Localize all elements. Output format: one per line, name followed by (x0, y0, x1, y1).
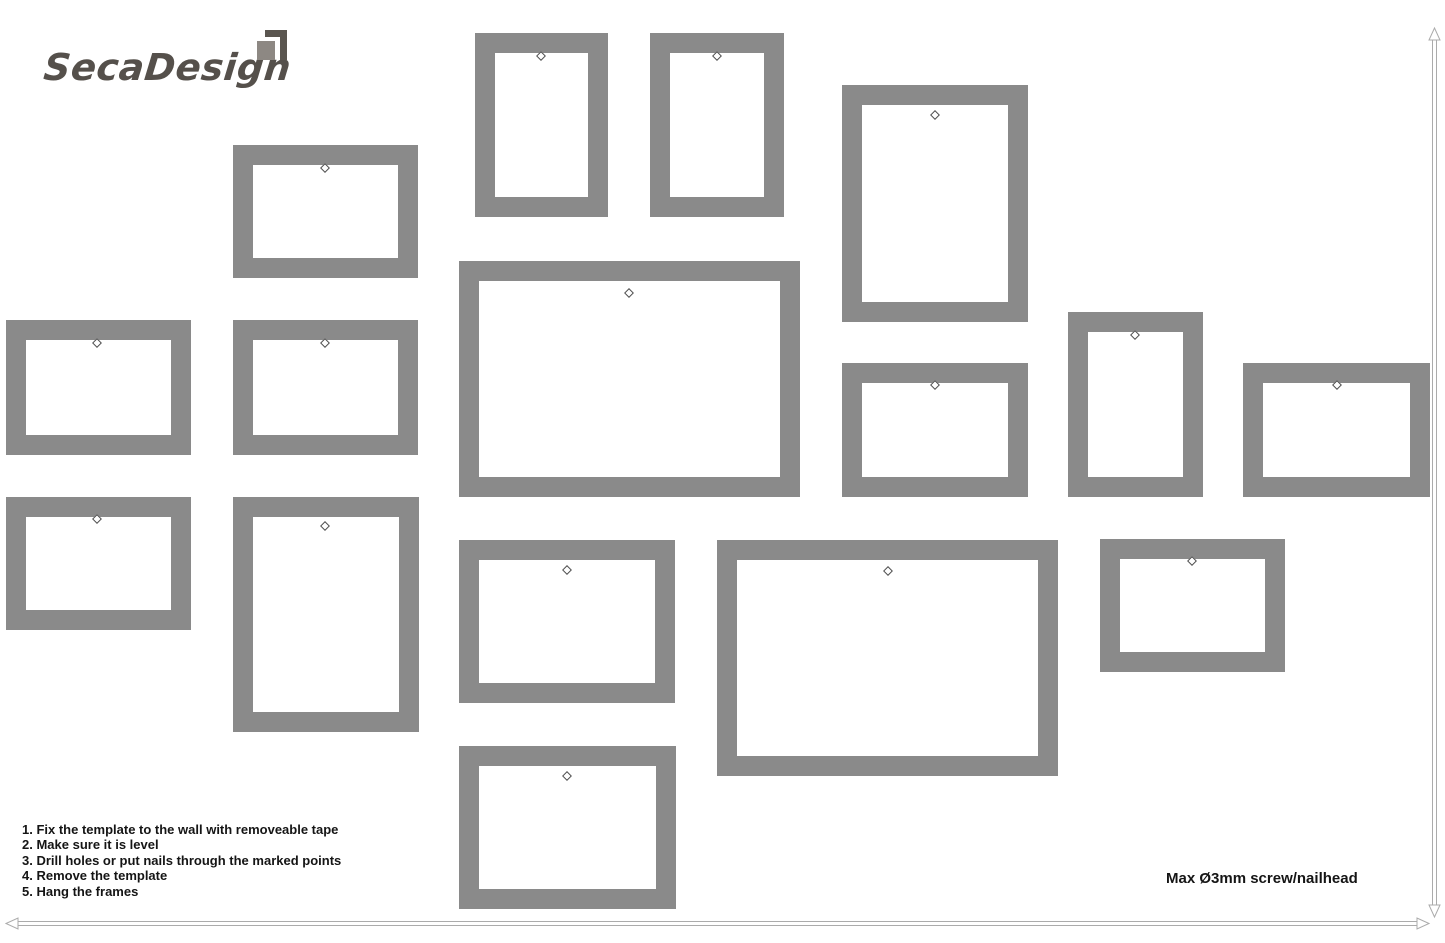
frame-9 (1068, 312, 1203, 497)
vertical-dimension-arrow (1429, 28, 1440, 917)
logo-square-icon-inner-square (257, 41, 275, 60)
hanging-template-page: SecaDesign 1. Fix the template to the wa… (0, 0, 1445, 943)
instruction-line: 5. Hang the frames (22, 884, 341, 899)
arrowhead-up-icon (1429, 28, 1440, 40)
logo-square-icon (257, 30, 287, 60)
frame-4 (842, 85, 1028, 322)
logo: SecaDesign (44, 28, 304, 108)
instruction-line: 1. Fix the template to the wall with rem… (22, 822, 341, 837)
logo-text: SecaDesign (42, 46, 294, 89)
instructions-list: 1. Fix the template to the wall with rem… (22, 822, 341, 899)
frame-12 (233, 497, 419, 732)
instruction-line: 4. Remove the template (22, 868, 341, 883)
instruction-line: 2. Make sure it is level (22, 837, 341, 852)
arrowhead-down-icon (1429, 905, 1440, 917)
logo-square-icon-right-bar (280, 30, 287, 60)
horizontal-dimension-arrow (6, 918, 1429, 929)
arrowhead-right-icon (1417, 918, 1429, 929)
frame-16 (459, 746, 676, 909)
instruction-line: 3. Drill holes or put nails through the … (22, 853, 341, 868)
frame-2 (475, 33, 608, 217)
screw-note: Max Ø3mm screw/nailhead (1166, 870, 1358, 887)
arrowhead-left-icon (6, 918, 18, 929)
